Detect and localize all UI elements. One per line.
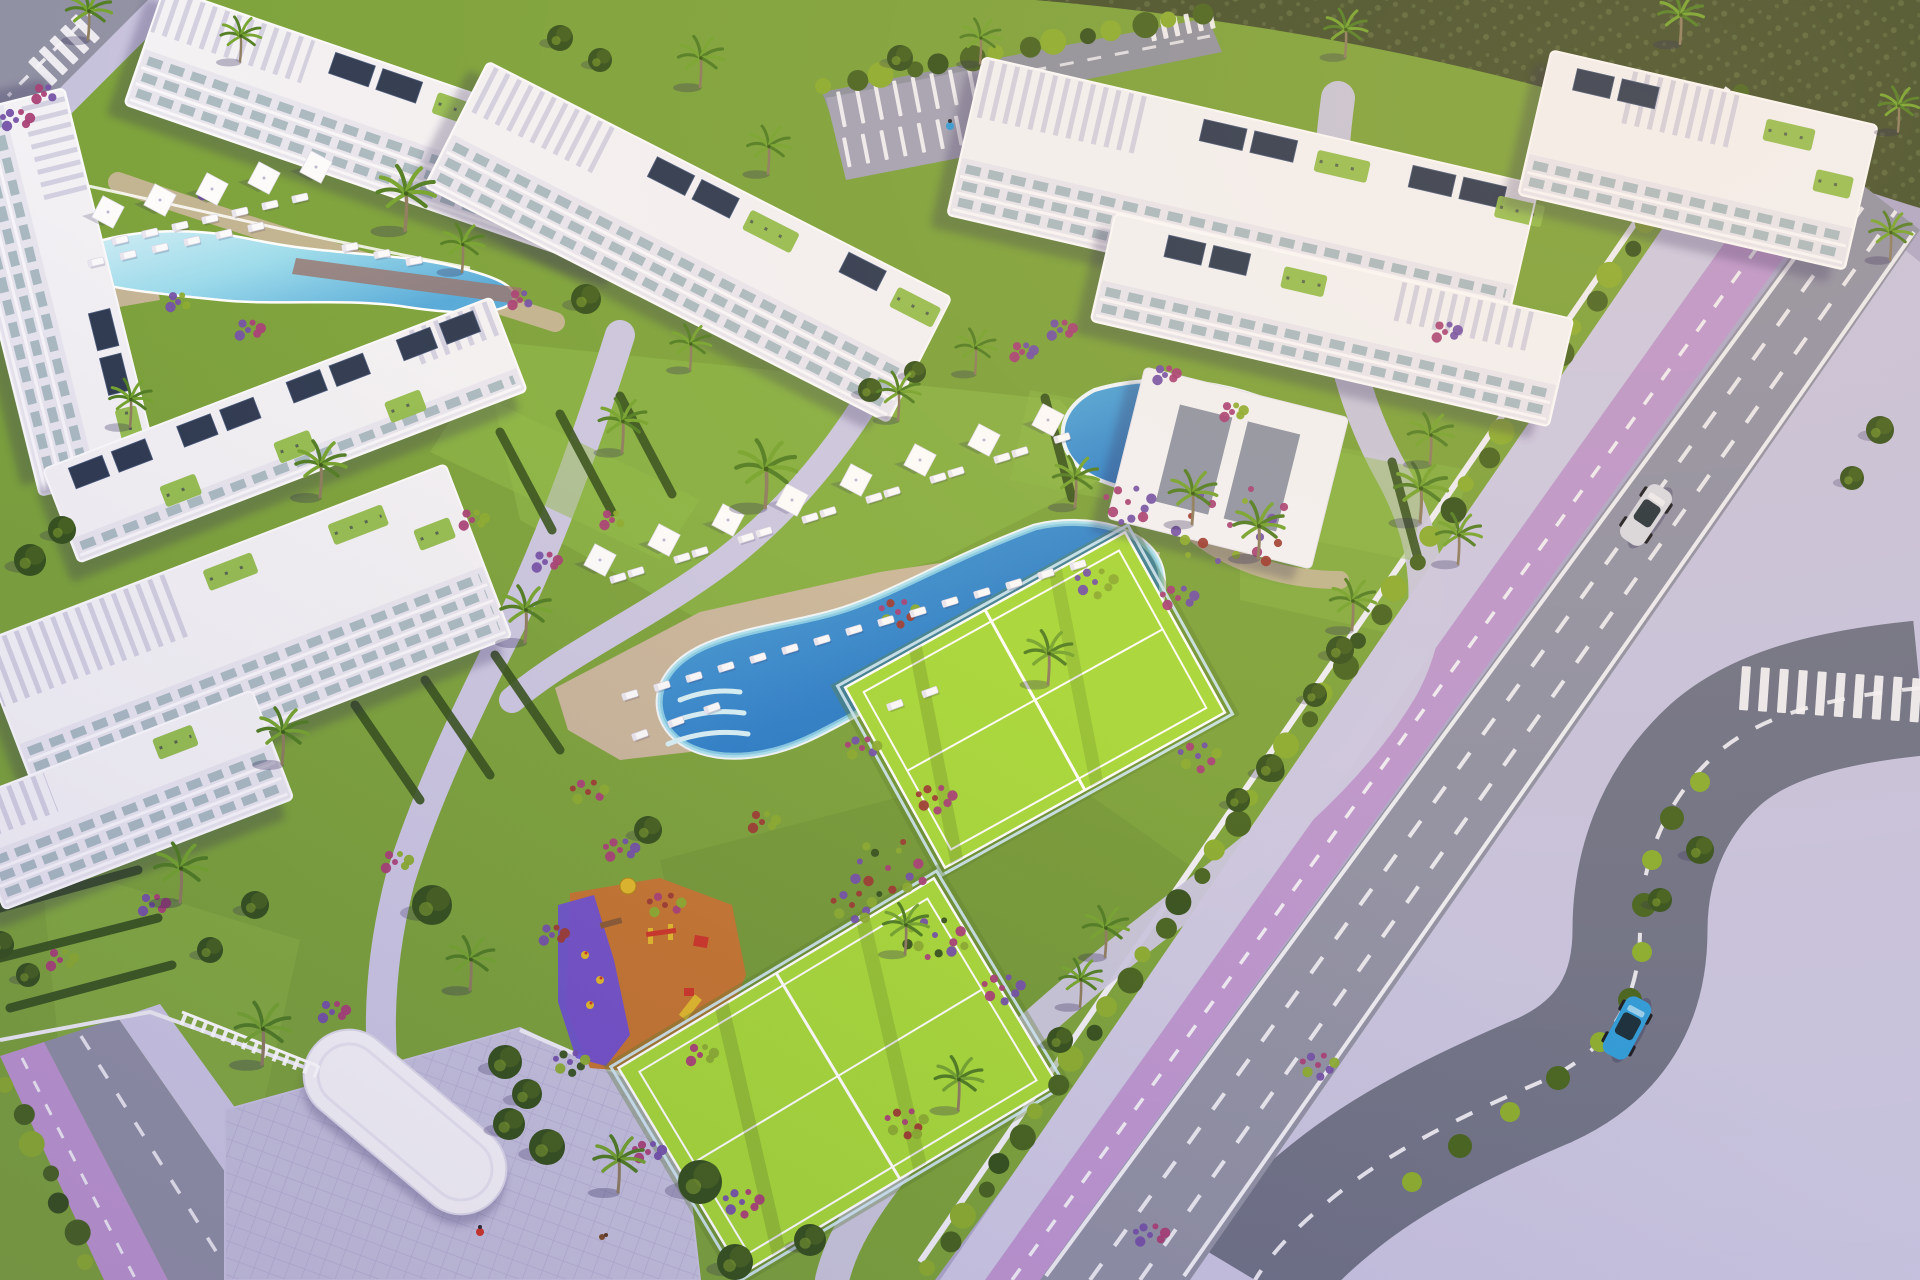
cool-shade (0, 0, 1920, 1280)
scene-svg (0, 0, 1920, 1280)
aerial-render-canvas (0, 0, 1920, 1280)
lighting-overlay (0, 0, 1920, 1280)
